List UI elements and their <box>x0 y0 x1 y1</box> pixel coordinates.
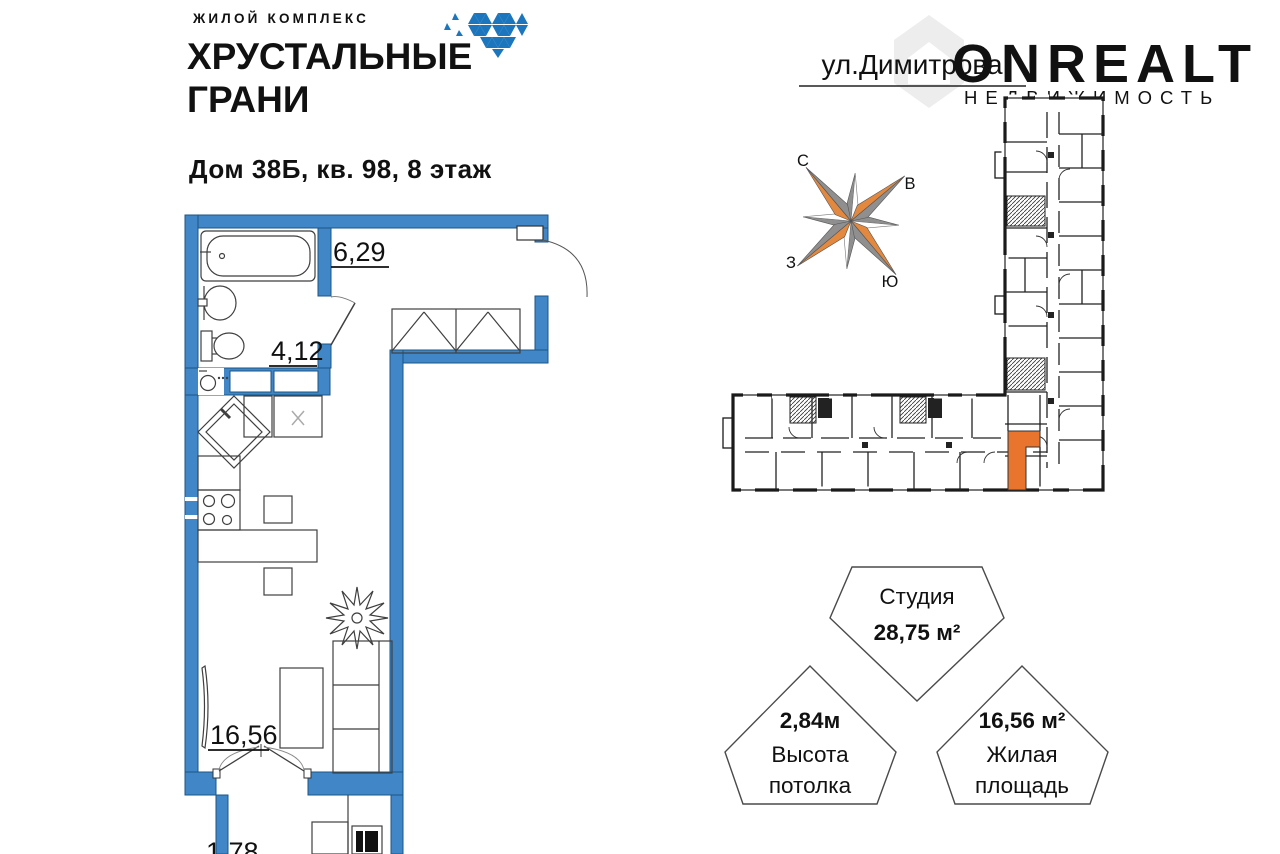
floorplan-graphics: ONREALT НЕДВИЖИМОСТЬ ЖИЛОЙ КОМПЛЕКС ХРУС… <box>0 0 1280 854</box>
badge-unit-type-label: Студия <box>879 584 954 609</box>
stair-core <box>900 397 926 423</box>
badge-unit-type: Студия 28,75 м² <box>830 567 1004 701</box>
compass-east-label: В <box>904 175 915 193</box>
logo-line2: ГРАНИ <box>187 79 309 120</box>
badge-living-area: 16,56 м² Жилая площадь <box>937 666 1108 804</box>
stair-core <box>1007 196 1045 226</box>
badge-living-value: 16,56 м² <box>979 708 1066 733</box>
badge-unit-type-value: 28,75 м² <box>874 620 961 645</box>
kitchen-corner-sink-icon <box>198 396 270 468</box>
shaft-box <box>274 396 322 437</box>
badge-ceiling-value: 2,84м <box>780 708 840 733</box>
listing-title: Дом 38Б, кв. 98, 8 этаж <box>189 154 492 184</box>
wall-vent <box>185 497 198 501</box>
badge-ceiling-caption1: Высота <box>771 742 849 767</box>
floorplan-page: ONREALT НЕДВИЖИМОСТЬ ЖИЛОЙ КОМПЛЕКС ХРУС… <box>0 0 1280 854</box>
washer-alcove <box>198 368 224 395</box>
toilet-icon <box>201 331 244 361</box>
bathroom-area-label: 4,12 <box>271 336 324 366</box>
desk <box>280 668 323 748</box>
wall-niche <box>230 371 271 392</box>
balcony-area-label: 1,78 <box>206 837 259 854</box>
compass-north-label: С <box>797 152 809 170</box>
compass-west-label: З <box>786 254 796 272</box>
stair-core <box>1007 358 1045 390</box>
badge-living-caption1: Жилая <box>986 742 1057 767</box>
bathtub-icon <box>200 231 315 281</box>
plant-icon <box>326 587 388 649</box>
logo: ЖИЛОЙ КОМПЛЕКС ХРУСТАЛЬНЫЕ ГРАНИ <box>187 11 528 120</box>
stair-core <box>790 397 816 423</box>
wall-niche <box>274 371 318 392</box>
info-badges: Студия 28,75 м² 2,84м Высота потолка 16,… <box>725 567 1108 804</box>
compass-long-arms-gray <box>752 122 949 319</box>
badge-living-caption2: площадь <box>975 773 1069 798</box>
stool <box>264 496 292 523</box>
sofa-icon <box>333 641 392 773</box>
building-plan <box>723 95 1107 494</box>
compass-south-label: Ю <box>882 273 899 291</box>
bathroom-door <box>331 297 355 345</box>
logo-line1: ХРУСТАЛЬНЫЕ <box>187 36 472 77</box>
entry-door <box>517 226 587 297</box>
sink-icon <box>198 286 236 320</box>
logo-eyebrow: ЖИЛОЙ КОМПЛЕКС <box>192 11 369 26</box>
balcony <box>312 795 382 854</box>
stool <box>264 568 292 595</box>
compass-rose: С В З Ю <box>752 122 949 319</box>
living-area-label: 16,56 <box>210 720 278 750</box>
street-label: ул.Димитрова <box>821 49 1003 80</box>
badge-ceiling-caption2: потолка <box>769 773 852 798</box>
badge-ceiling-height: 2,84м Высота потолка <box>725 666 896 804</box>
unit-floor-plan: 6,29 4,12 16,56 1,78 <box>185 215 587 854</box>
wardrobe-icon <box>392 309 520 353</box>
balcony-washer-icon <box>352 826 382 854</box>
wall-vent <box>185 515 198 519</box>
balcony-cabinet <box>312 822 348 854</box>
tv-icon <box>202 666 208 748</box>
kitchen-table <box>198 530 317 562</box>
hall-area-label: 6,29 <box>333 237 386 267</box>
stove-icon <box>198 490 240 530</box>
